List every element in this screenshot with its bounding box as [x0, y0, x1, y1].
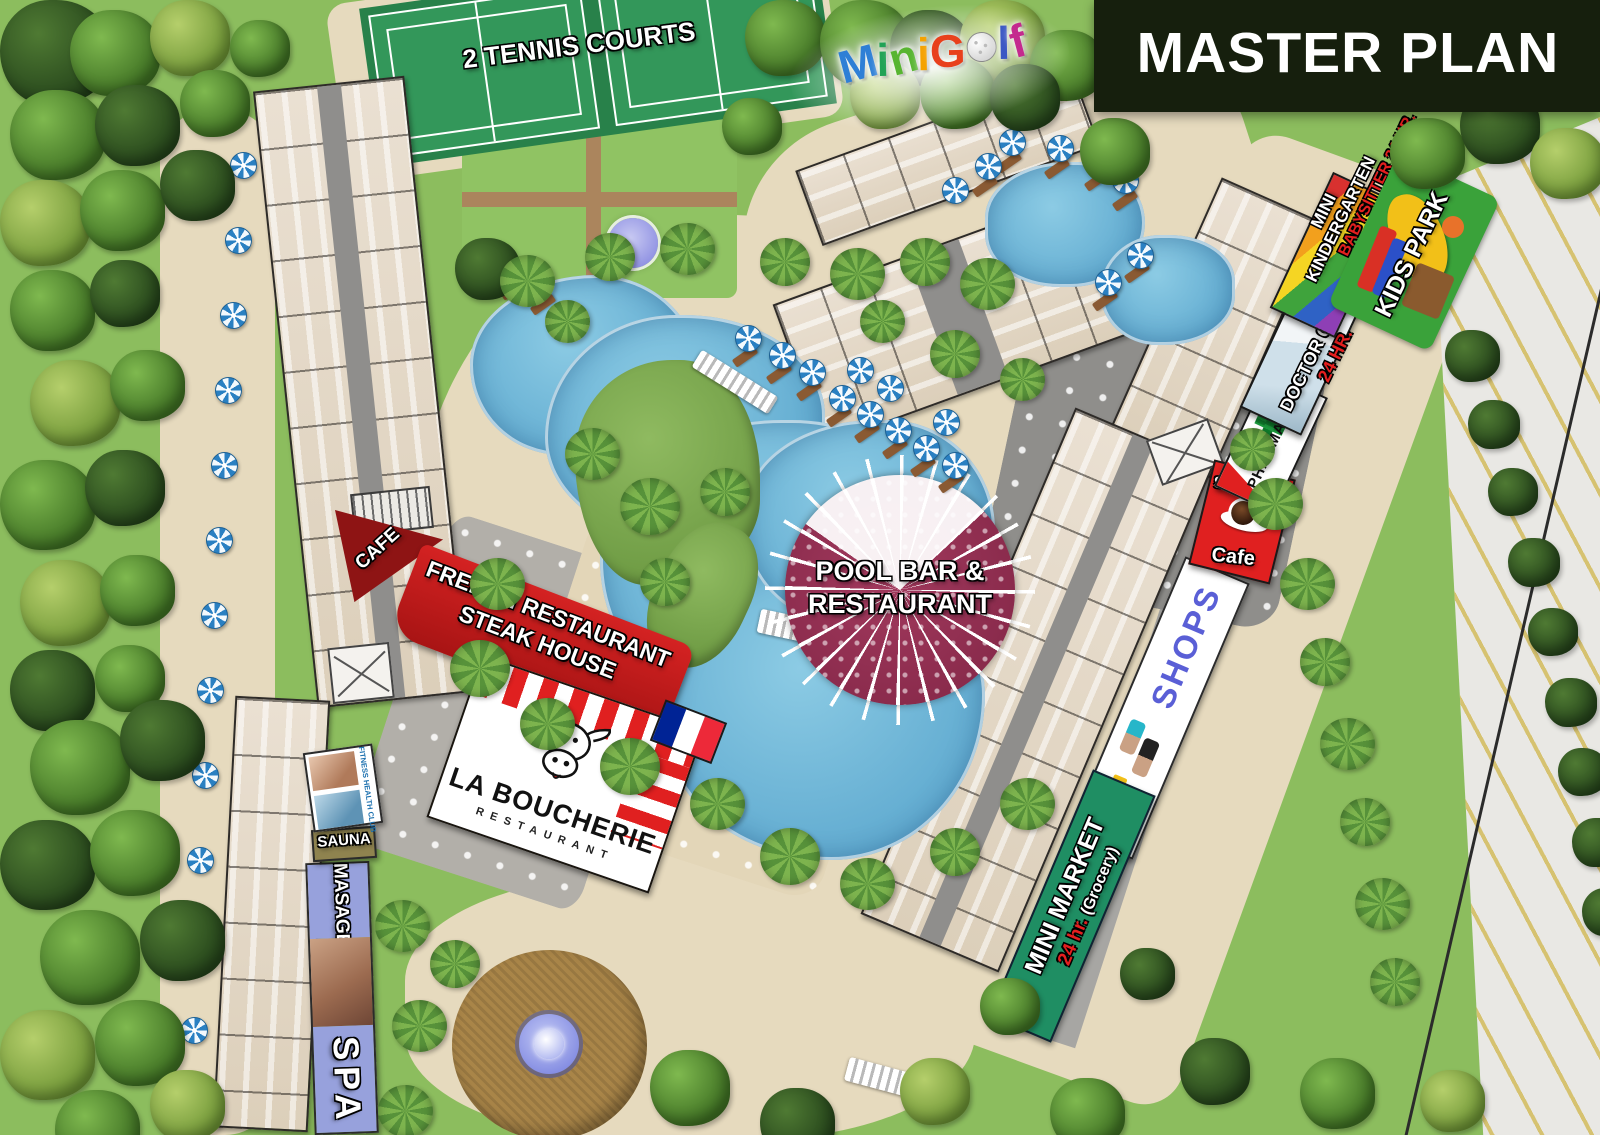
- palm-tree: [470, 558, 525, 610]
- palm-tree: [430, 940, 480, 988]
- tree: [1390, 118, 1465, 189]
- palm-tree: [545, 300, 590, 343]
- palm-tree: [585, 233, 635, 281]
- palm-tree: [1280, 558, 1335, 610]
- beach-umbrella-icon: [847, 357, 874, 384]
- tree: [722, 98, 782, 155]
- palm-tree: [830, 248, 885, 300]
- palm-tree: [690, 778, 745, 830]
- tree: [0, 820, 95, 910]
- tree: [900, 1058, 970, 1125]
- beach-umbrella-icon: [181, 1017, 208, 1044]
- beach-umbrella-icon: [1127, 242, 1154, 269]
- tree: [10, 270, 95, 351]
- tree: [1180, 1038, 1250, 1105]
- beach-umbrella-icon: [913, 435, 940, 462]
- beach-umbrella-icon: [225, 227, 252, 254]
- tree: [150, 1070, 225, 1135]
- palm-tree: [760, 238, 810, 286]
- palm-tree: [960, 258, 1015, 310]
- palm-tree: [565, 428, 620, 480]
- palm-tree: [1300, 638, 1350, 686]
- palm-tree: [500, 255, 555, 307]
- palm-tree: [840, 858, 895, 910]
- massage-photo: [310, 937, 373, 1027]
- beach-umbrella-icon: [201, 602, 228, 629]
- resort-master-plan-map: POOL BAR & RESTAURANT CAFE FRENCH RESTAU…: [0, 0, 1600, 1135]
- tree: [650, 1050, 730, 1126]
- palm-tree: [620, 478, 680, 535]
- palm-tree: [930, 828, 980, 876]
- tree: [40, 910, 140, 1005]
- fitness-photo-1: [308, 751, 358, 791]
- pool-bar-label: POOL BAR & RESTAURANT: [795, 555, 1005, 621]
- wellness-strip: MASAGE SPA: [305, 861, 378, 1135]
- tree: [150, 0, 230, 76]
- palm-tree: [1000, 358, 1045, 401]
- palm-tree: [640, 558, 690, 606]
- beach-umbrella-icon: [187, 847, 214, 874]
- tree: [0, 460, 95, 550]
- palm-tree: [900, 238, 950, 286]
- utility-box-left: [327, 642, 395, 704]
- tree: [230, 20, 290, 77]
- tree: [95, 85, 180, 166]
- tree: [10, 90, 105, 180]
- golf-ball-icon: [965, 30, 999, 64]
- tree: [1120, 948, 1175, 1000]
- beach-umbrella-icon: [220, 302, 247, 329]
- cafe-label: Cafe: [1192, 542, 1274, 573]
- tree: [30, 360, 120, 446]
- palm-tree: [375, 900, 430, 952]
- tree: [1558, 748, 1600, 796]
- tree: [0, 180, 90, 266]
- tree: [85, 450, 165, 526]
- palm-tree: [1320, 718, 1375, 770]
- beach-umbrella-icon: [215, 377, 242, 404]
- tree: [20, 560, 110, 646]
- palm-tree: [1230, 428, 1275, 471]
- tree: [10, 650, 95, 731]
- palm-tree: [392, 1000, 447, 1052]
- beach-umbrella-icon: [877, 375, 904, 402]
- palm-tree: [1340, 798, 1390, 846]
- palm-tree: [930, 330, 980, 378]
- pool-bar-label-line1: POOL BAR &: [795, 555, 1005, 588]
- tree: [55, 1090, 140, 1135]
- beach-umbrella-icon: [942, 452, 969, 479]
- tree: [120, 700, 205, 781]
- garden-path-horizontal: [462, 192, 737, 207]
- palm-tree: [450, 640, 510, 697]
- tree: [70, 10, 160, 96]
- tree: [1528, 608, 1578, 656]
- tree: [80, 170, 165, 251]
- tree: [180, 70, 250, 137]
- palm-tree: [760, 828, 820, 885]
- palm-tree: [1370, 958, 1420, 1006]
- tree: [1468, 400, 1520, 449]
- beach-umbrella-icon: [933, 409, 960, 436]
- beach-umbrella-icon: [885, 417, 912, 444]
- tree: [1488, 468, 1538, 516]
- beach-umbrella-icon: [1095, 269, 1122, 296]
- tree: [140, 900, 225, 981]
- tree: [980, 978, 1040, 1035]
- tree: [30, 720, 130, 815]
- page-title: MASTER PLAN: [1108, 20, 1588, 86]
- beach-umbrella-icon: [769, 342, 796, 369]
- palm-tree: [520, 698, 575, 750]
- tree: [1508, 538, 1560, 587]
- tree: [110, 350, 185, 421]
- beach-umbrella-icon: [197, 677, 224, 704]
- tree: [1080, 118, 1150, 185]
- mini-golf-letter: G: [929, 23, 966, 78]
- beach-umbrella-icon: [211, 452, 238, 479]
- beach-umbrella-icon: [857, 401, 884, 428]
- palm-tree: [1248, 478, 1303, 530]
- mini-golf-letter: i: [917, 27, 931, 81]
- beach-umbrella-icon: [799, 359, 826, 386]
- beach-umbrella-icon: [999, 129, 1026, 156]
- tree: [90, 810, 180, 896]
- tree: [1300, 1058, 1375, 1129]
- beach-umbrella-icon: [942, 177, 969, 204]
- beach-umbrella-icon: [735, 325, 762, 352]
- tree: [1050, 1078, 1125, 1135]
- pool-bar-label-line2: RESTAURANT: [795, 588, 1005, 621]
- tree: [1445, 330, 1500, 382]
- fitness-sign: FITNESS HEALTH CLUB: [303, 744, 383, 833]
- tree: [160, 150, 235, 221]
- tree: [1420, 1070, 1485, 1132]
- north-pool-2: [1100, 235, 1235, 345]
- tree: [100, 555, 175, 626]
- masage-label: MASAGE: [328, 863, 353, 940]
- spa-label: SPA: [324, 1034, 369, 1127]
- tree: [0, 1010, 95, 1100]
- palm-tree: [860, 300, 905, 343]
- palm-tree: [1000, 778, 1055, 830]
- beach-umbrella-icon: [829, 385, 856, 412]
- beach-umbrella-icon: [975, 153, 1002, 180]
- palm-tree: [600, 738, 660, 795]
- palm-tree: [1355, 878, 1410, 930]
- tree: [1545, 678, 1597, 727]
- beach-umbrella-icon: [1047, 135, 1074, 162]
- tree: [90, 260, 160, 327]
- palm-tree: [700, 468, 750, 516]
- beach-umbrella-icon: [206, 527, 233, 554]
- palm-tree: [378, 1085, 433, 1135]
- palm-tree: [660, 223, 715, 275]
- fitness-photo-2: [314, 790, 364, 830]
- tree: [1530, 128, 1600, 199]
- round-fountain-center: [534, 1029, 564, 1059]
